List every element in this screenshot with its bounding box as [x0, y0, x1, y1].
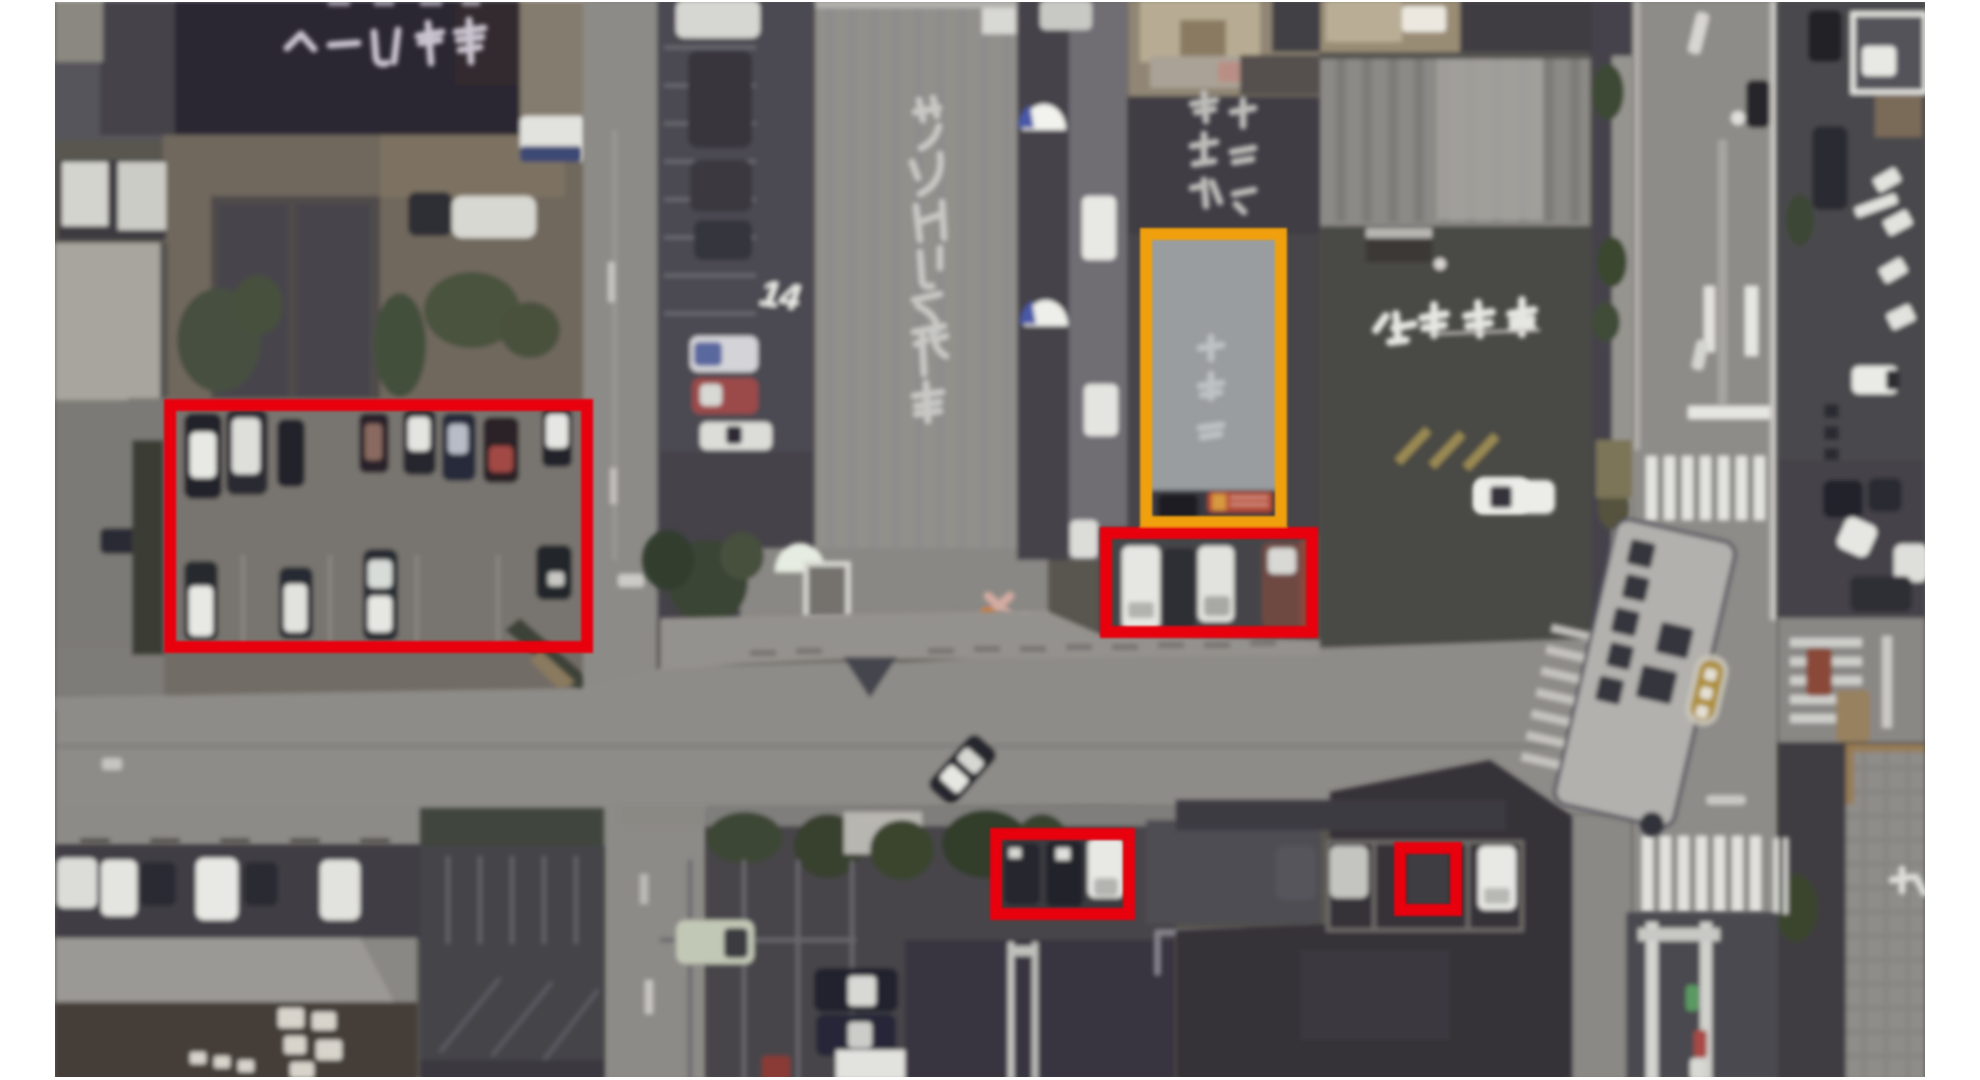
svg-text:14: 14	[758, 272, 803, 318]
